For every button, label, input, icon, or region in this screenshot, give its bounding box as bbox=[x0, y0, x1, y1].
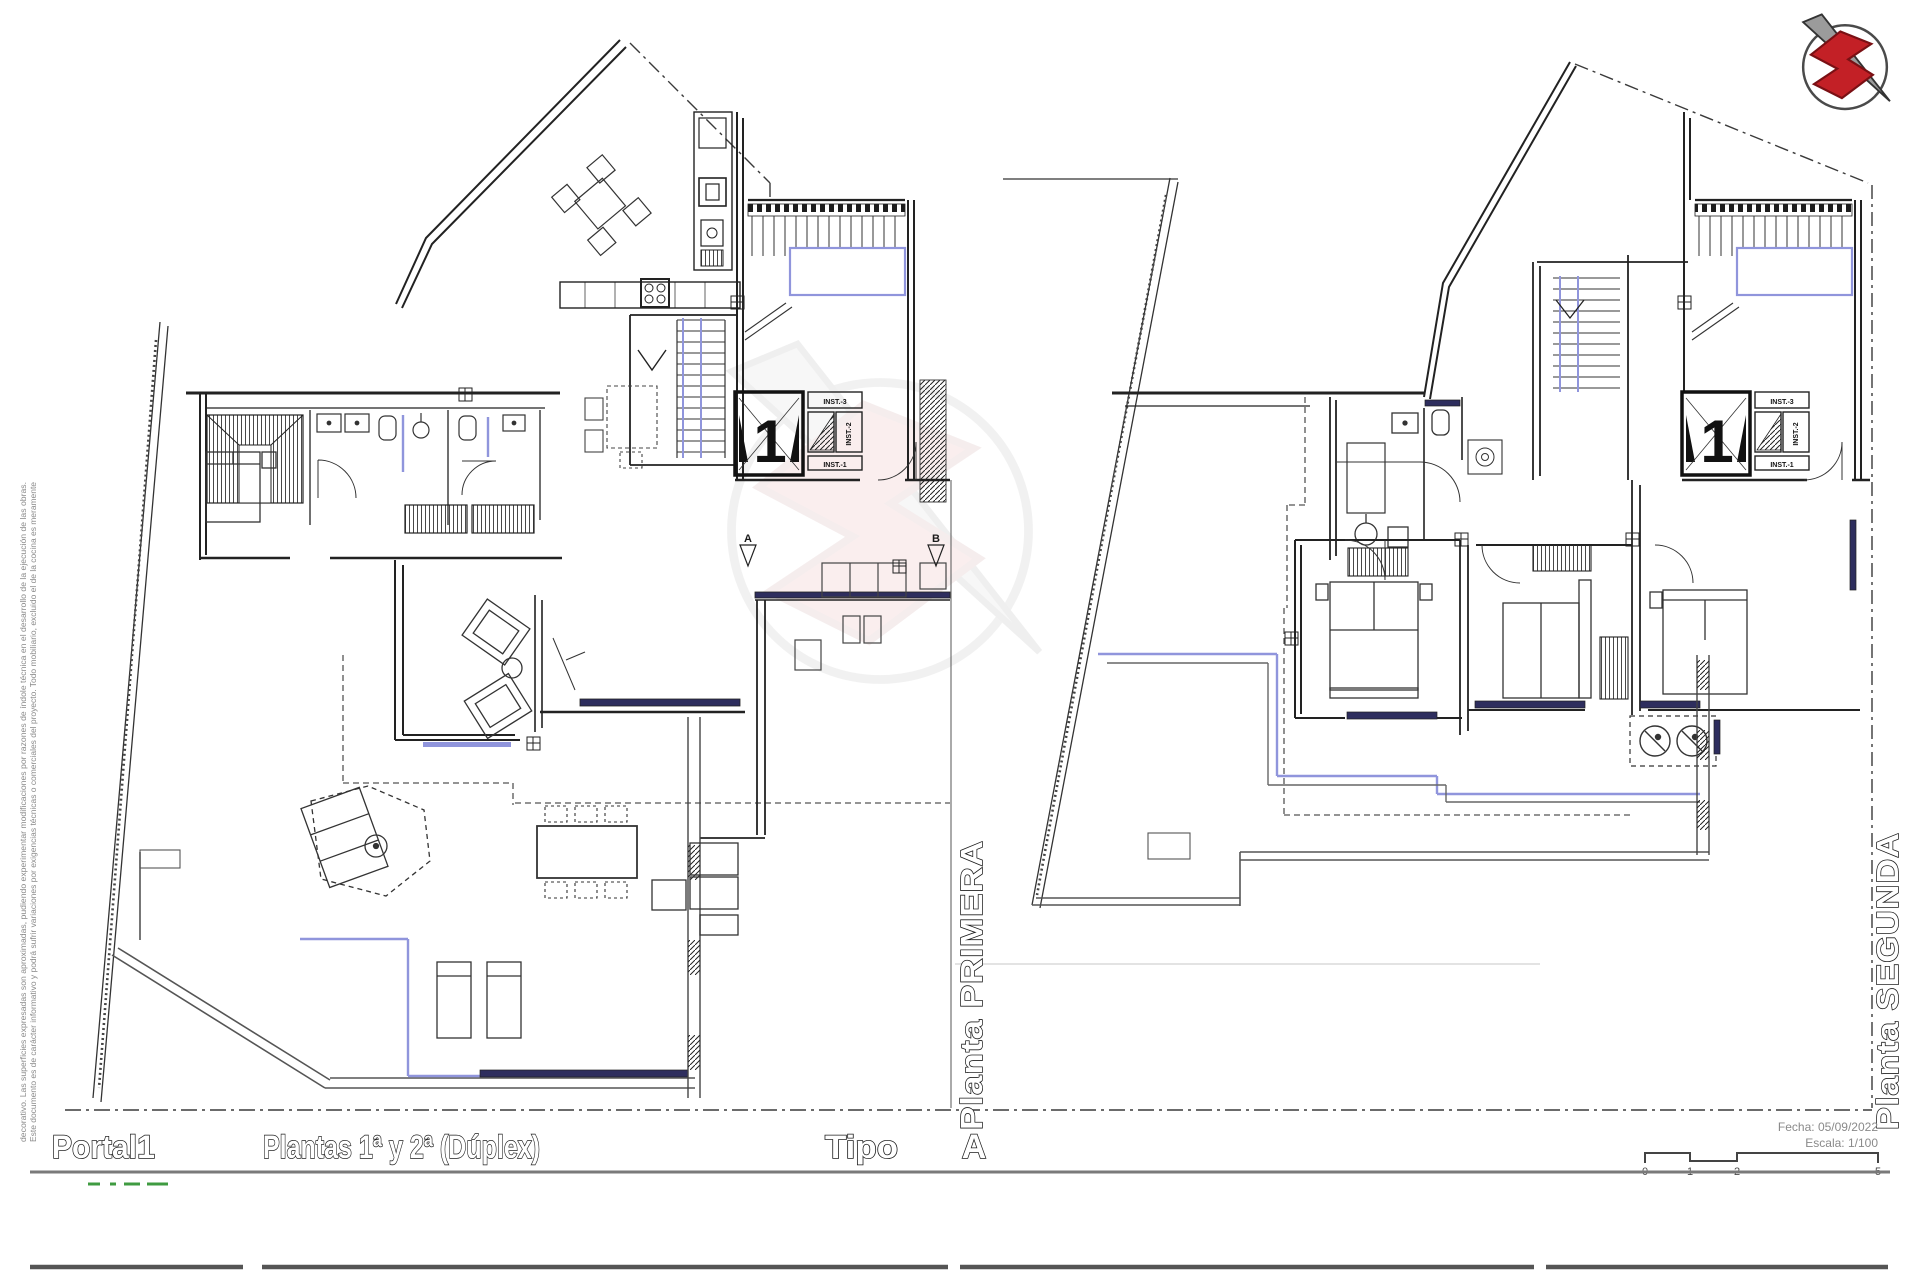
portal-label: Portal bbox=[52, 1129, 137, 1165]
bathroom-segunda bbox=[1330, 397, 1502, 576]
terrace-primera bbox=[112, 600, 765, 1098]
company-logo-icon bbox=[1803, 14, 1890, 109]
armchairs bbox=[462, 599, 585, 738]
inst3-label-segunda: INST.-3 bbox=[1770, 399, 1793, 406]
floorplan-sheet: A B bbox=[0, 0, 1920, 1280]
elevator-number-segunda: 1 bbox=[1700, 408, 1733, 475]
portal-value: 1 bbox=[137, 1129, 155, 1165]
tipo-label: Tipo bbox=[825, 1129, 898, 1165]
plan-label-segunda: Planta SEGUNDA bbox=[1870, 832, 1905, 1130]
disclaimer-line-2: decorativo. Las superficies expresadas s… bbox=[19, 482, 28, 1142]
kitchen bbox=[560, 112, 740, 308]
escala-text: Escala: 1/100 bbox=[1805, 1136, 1878, 1150]
plantas-label: Plantas 1ª y 2ª (Dúplex) bbox=[263, 1129, 540, 1165]
disclaimer: decorativo. Las superficies expresadas s… bbox=[19, 482, 38, 1142]
watermark-logo bbox=[732, 344, 1040, 680]
inst1-label-segunda: INST.-1 bbox=[1770, 462, 1793, 469]
door-marker-a: A bbox=[744, 533, 752, 545]
door-marker-b: B bbox=[932, 533, 940, 545]
plan-label-primera: Planta PRIMERA bbox=[954, 840, 989, 1130]
balcony-table bbox=[552, 155, 651, 256]
terrace-furniture bbox=[301, 786, 738, 1038]
wardrobe-u bbox=[207, 415, 303, 503]
tipo-value: A bbox=[962, 1128, 987, 1166]
wall-junctions-2 bbox=[1285, 296, 1691, 645]
floorplan-canvas: A B bbox=[0, 0, 1920, 1280]
inst1-label-primera: INST.-1 bbox=[823, 462, 846, 469]
duplex-stair-segunda bbox=[1533, 255, 1688, 480]
site-boundary-left bbox=[93, 322, 168, 1102]
plot-line-diagonal-2 bbox=[1575, 64, 1872, 1108]
sheet-footer-lines bbox=[30, 1172, 1890, 1267]
fecha-text: Fecha: 05/09/2022 bbox=[1778, 1120, 1878, 1134]
scale-bar: 0 1 2 5 bbox=[1642, 1153, 1881, 1178]
inst2-label-segunda: INST.-2 bbox=[1793, 422, 1800, 445]
title-block: Portal 1 Plantas 1ª y 2ª (Dúplex) Tipo A… bbox=[52, 1120, 1881, 1178]
elevator-number-primera: 1 bbox=[753, 408, 786, 475]
duplex-stair-primera bbox=[585, 315, 737, 468]
plan-segunda-drawing bbox=[955, 62, 1872, 1108]
inst2-label-primera: INST.-2 bbox=[846, 422, 853, 445]
disclaimer-line-1: Este documento es de carácter informativ… bbox=[29, 482, 38, 1142]
inst3-label-primera: INST.-3 bbox=[823, 399, 846, 406]
